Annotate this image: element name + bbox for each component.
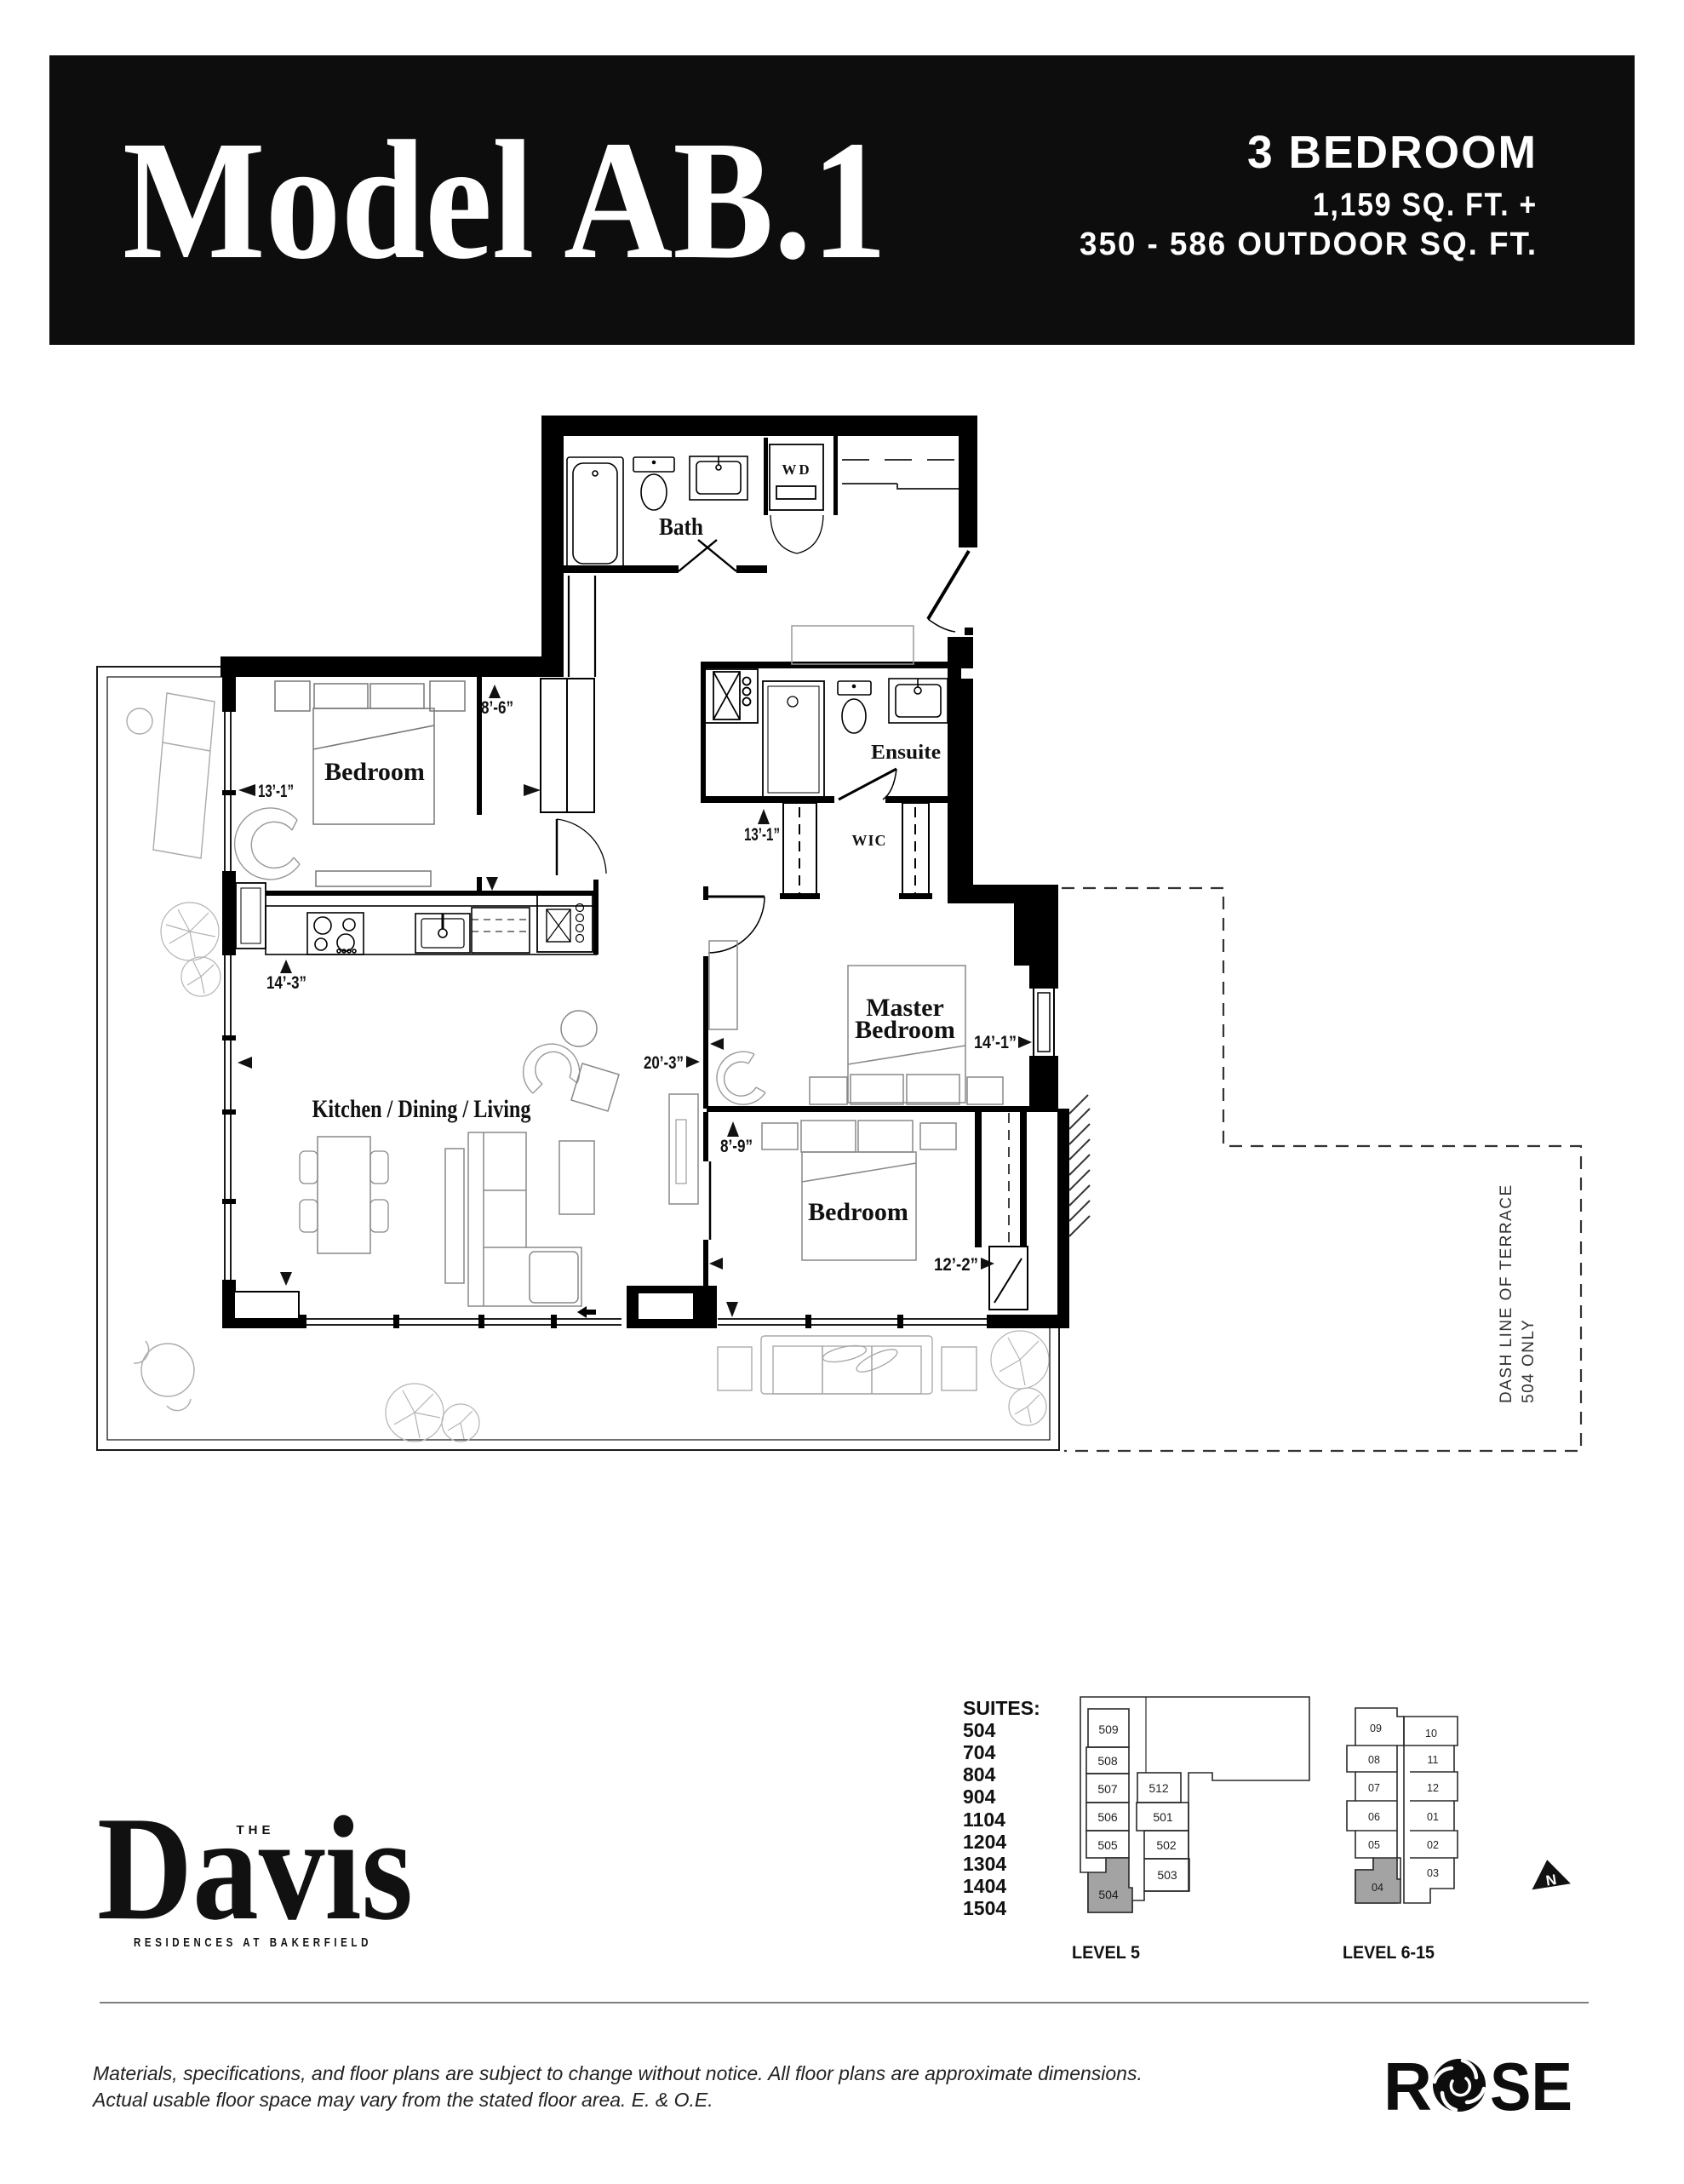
svg-text:Bedroom: Bedroom [324,758,425,786]
svg-text:08: 08 [1368,1754,1380,1766]
svg-text:507: 507 [1097,1782,1118,1796]
svg-text:512: 512 [1148,1781,1169,1795]
svg-text:Actual usable floor space may: Actual usable floor space may vary from … [91,2089,713,2111]
svg-text:8’-9”: 8’-9” [720,1137,753,1156]
svg-text:Model AB.1: Model AB.1 [123,106,887,295]
svg-text:04: 04 [1372,1882,1383,1894]
svg-text:350 - 586 OUTDOOR SQ. FT.: 350 - 586 OUTDOOR SQ. FT. [1080,226,1538,262]
svg-text:02: 02 [1427,1839,1439,1851]
svg-text:WD: WD [782,461,811,478]
svg-text:506: 506 [1097,1810,1118,1824]
svg-text:13’-1”: 13’-1” [258,782,294,801]
svg-text:704: 704 [963,1741,996,1763]
svg-text:05: 05 [1368,1839,1380,1851]
svg-text:12’-2”: 12’-2” [934,1255,978,1275]
svg-text:SUITES:: SUITES: [963,1697,1040,1719]
svg-text:11: 11 [1428,1754,1439,1766]
svg-text:Bath: Bath [659,514,703,541]
svg-text:20’-3”: 20’-3” [644,1053,684,1073]
svg-text:505: 505 [1097,1838,1118,1852]
svg-text:14’-1”: 14’-1” [974,1033,1017,1052]
svg-text:Bedroom: Bedroom [808,1198,908,1226]
svg-text:1304: 1304 [963,1853,1006,1875]
svg-text:501: 501 [1153,1810,1173,1824]
svg-text:10: 10 [1425,1728,1437,1740]
svg-text:Kitchen / Dining / Living: Kitchen / Dining / Living [312,1095,531,1123]
svg-text:13’-1”: 13’-1” [744,825,780,845]
svg-text:8’-6”: 8’-6” [481,698,513,718]
svg-text:1404: 1404 [963,1875,1006,1897]
svg-text:1504: 1504 [963,1897,1006,1919]
svg-text:SE: SE [1490,2049,1572,2124]
svg-text:508: 508 [1097,1754,1118,1768]
svg-text:LEVEL 6-15: LEVEL 6-15 [1343,1942,1435,1963]
svg-text:804: 804 [963,1763,996,1786]
svg-text:504: 504 [1098,1888,1119,1901]
svg-text:01: 01 [1427,1811,1439,1823]
svg-text:07: 07 [1368,1782,1380,1794]
svg-text:904: 904 [963,1786,996,1808]
svg-text:Bedroom: Bedroom [855,1016,955,1044]
svg-text:WIC: WIC [851,832,886,849]
svg-text:06: 06 [1368,1811,1380,1823]
svg-text:1104: 1104 [963,1809,1005,1831]
svg-text:3 BEDROOM: 3 BEDROOM [1247,127,1538,178]
svg-text:504: 504 [963,1719,996,1741]
svg-text:14’-3”: 14’-3” [266,973,306,993]
svg-text:12: 12 [1427,1782,1439,1794]
svg-text:509: 509 [1098,1723,1119,1736]
svg-text:1,159 SQ. FT. +: 1,159 SQ. FT. + [1313,187,1538,223]
svg-text:504 ONLY: 504 ONLY [1520,1319,1538,1403]
svg-text:LEVEL 5: LEVEL 5 [1072,1942,1140,1963]
svg-text:Ensuite: Ensuite [871,742,941,764]
svg-text:1204: 1204 [963,1831,1006,1853]
svg-text:DASH LINE OF TERRACE: DASH LINE OF TERRACE [1498,1184,1515,1403]
svg-text:R: R [1383,2049,1432,2124]
svg-text:502: 502 [1156,1838,1177,1852]
svg-text:Materials, specifications, and: Materials, specifications, and floor pla… [93,2062,1143,2084]
svg-text:RESIDENCES AT BAKERFIELD: RESIDENCES AT BAKERFIELD [134,1935,372,1950]
svg-text:Davis: Davis [97,1786,413,1951]
svg-text:503: 503 [1157,1868,1177,1882]
svg-text:03: 03 [1427,1867,1439,1879]
svg-text:09: 09 [1370,1723,1382,1734]
